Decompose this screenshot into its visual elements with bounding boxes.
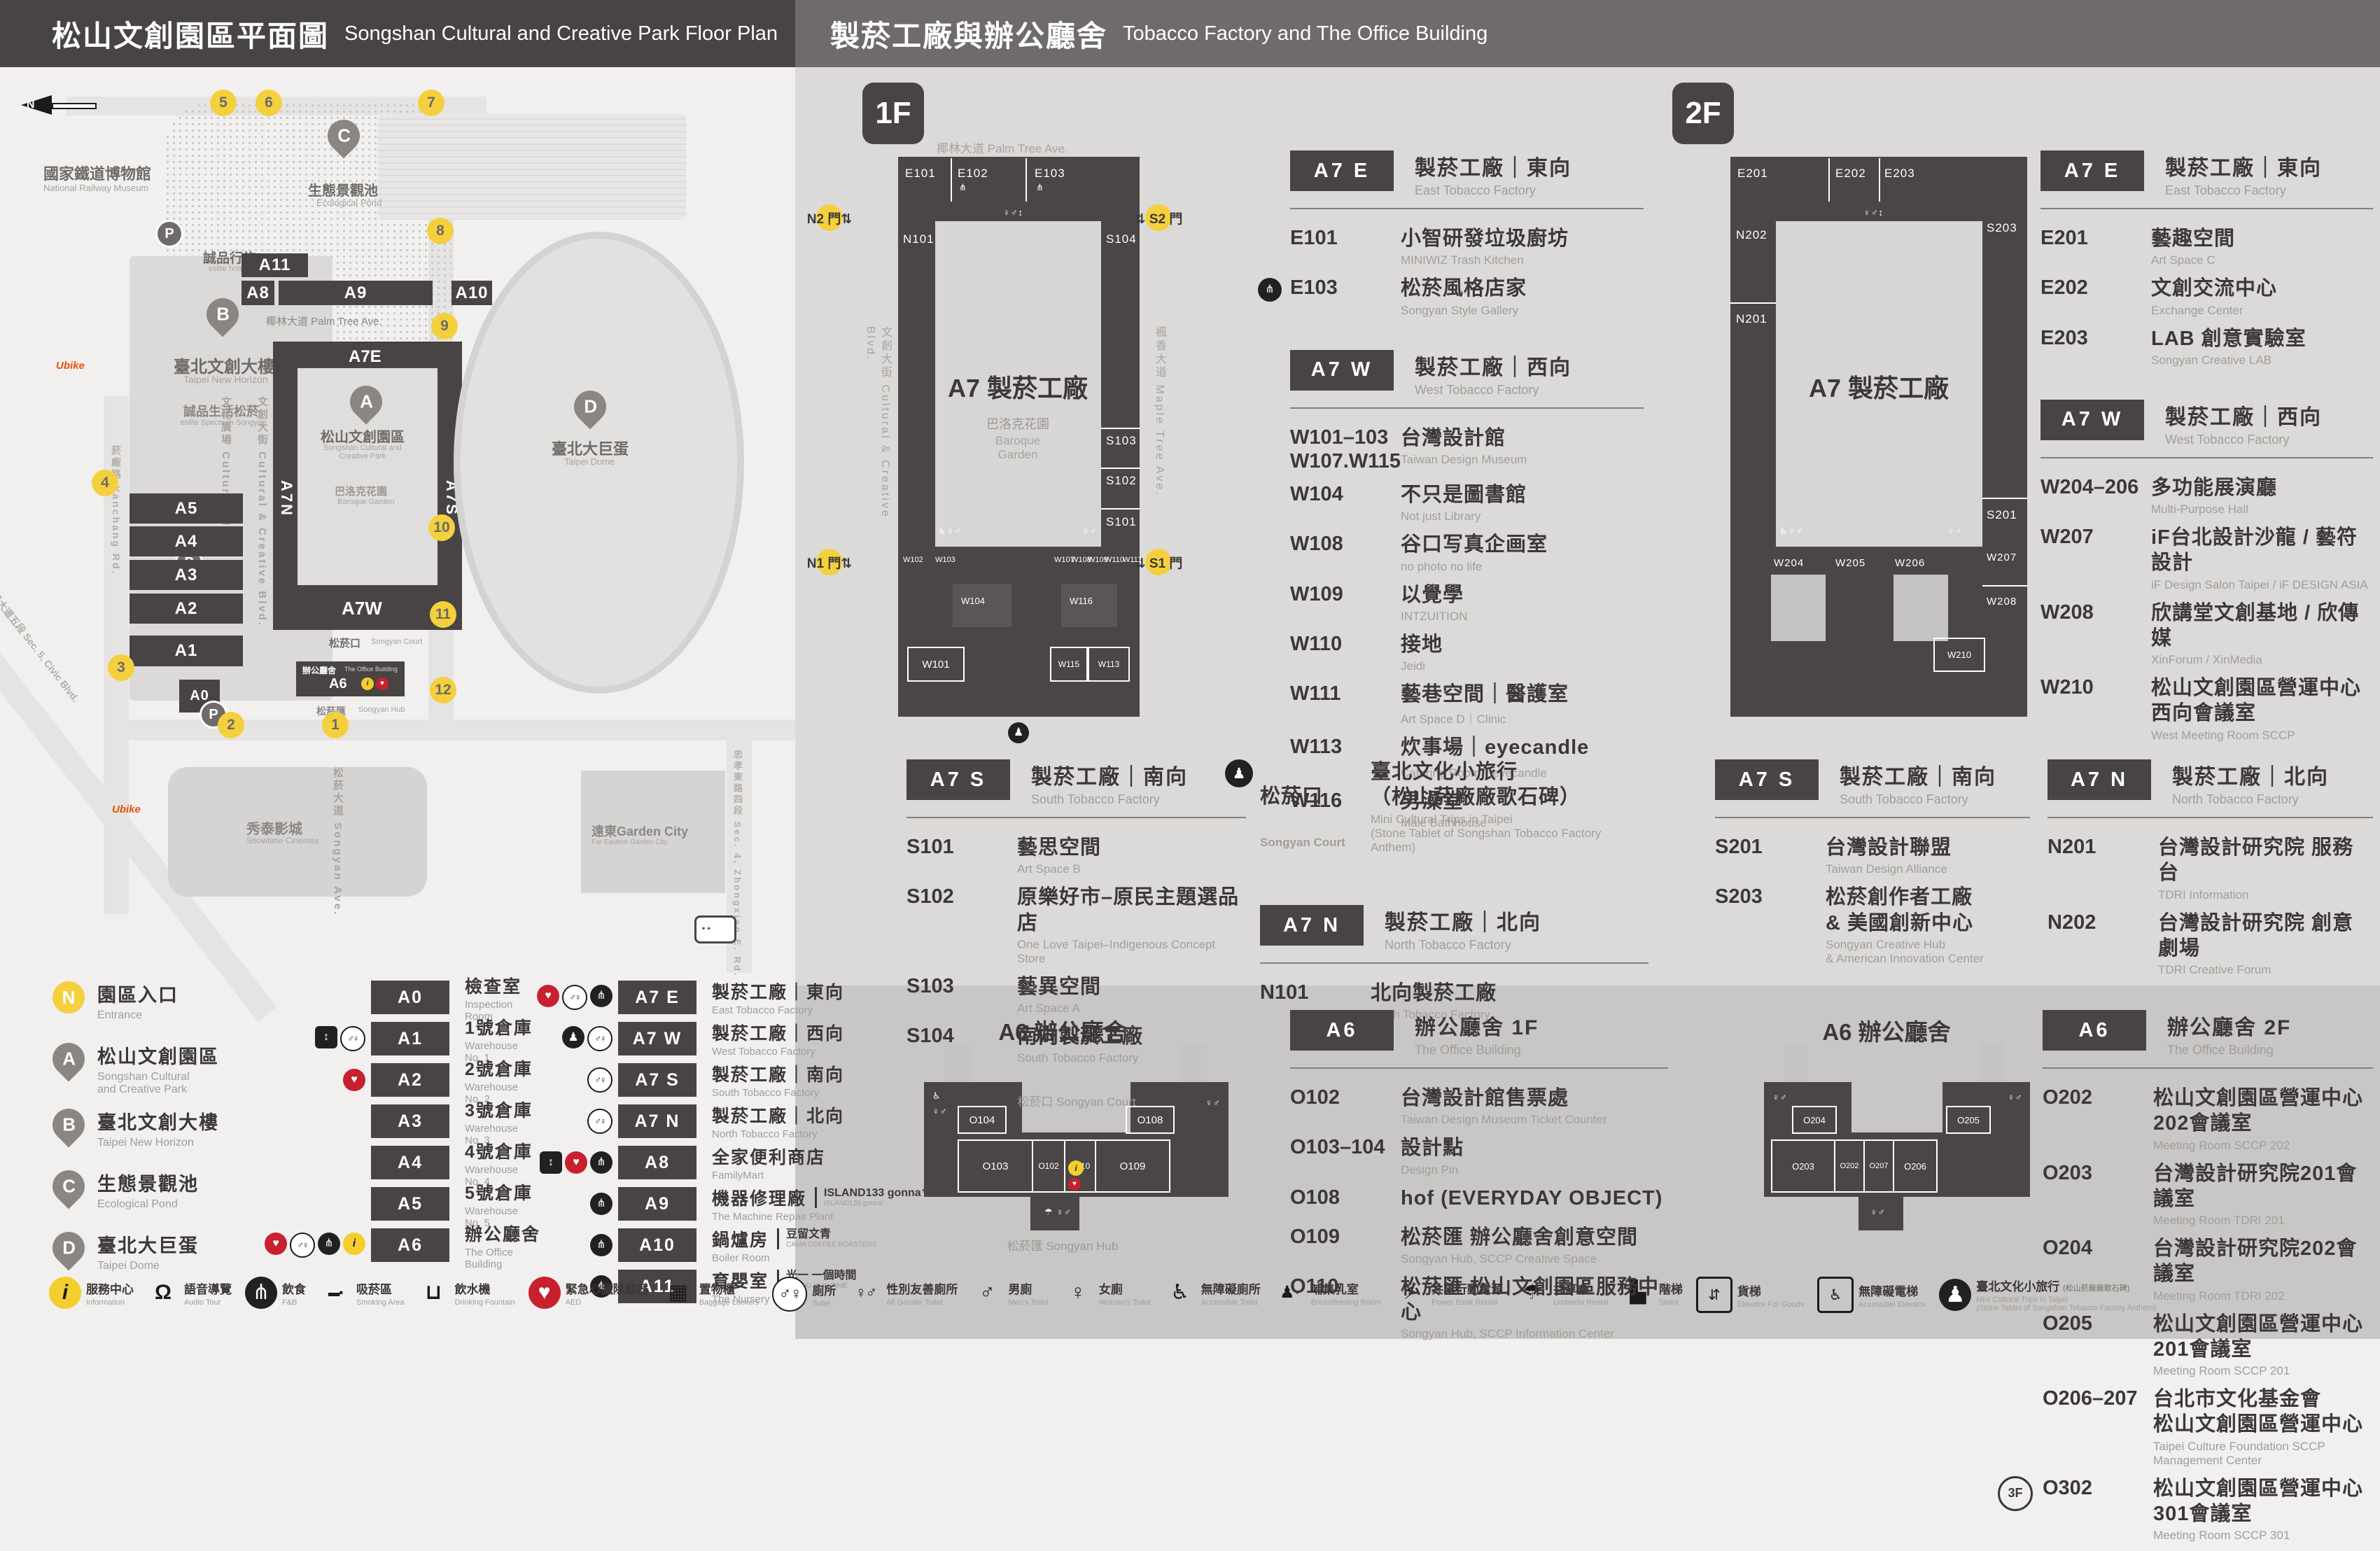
office-building-2f-listing: A6 辦公廳舍 2F The Office Building O202 松山文創… — [2043, 1010, 2373, 1551]
section-badge: A7 W — [1290, 350, 1394, 391]
room-s104: S104 — [1106, 232, 1137, 246]
section-title-en: The Office Building — [2167, 1043, 2291, 1058]
facility-legend-item: 語音導覽 Audio Tour — [147, 1277, 232, 1309]
place-name-zh: 松山文創園區 — [97, 1041, 219, 1069]
room-divider — [1982, 498, 2027, 499]
room-w115: W115 — [1050, 647, 1088, 682]
room-list-item: O109 松菸匯 辦公廳舍創意空間 Songyan Hub, SCCP Crea… — [1290, 1225, 1668, 1266]
room-name-zh: 原樂好市–原民主題選品店 — [1017, 885, 1246, 936]
toilet-icon: ♀♂ — [1947, 526, 1963, 536]
place-name-zh: 生態景觀池 — [97, 1169, 199, 1196]
section-badge: A7 W — [2040, 400, 2144, 440]
pin-d: D — [45, 1225, 91, 1270]
facility-legend-item: 飲食 F&B — [245, 1277, 306, 1309]
room-name-en: Not just Library — [1401, 510, 1527, 524]
women-icon — [1062, 1277, 1094, 1309]
legend-place-row: C 生態景觀池 Ecological Pond — [52, 1169, 283, 1219]
accessible-elevator-icon — [1817, 1277, 1854, 1313]
section-divider — [2040, 457, 2373, 458]
facility-label-en: Information — [86, 1298, 134, 1307]
legend-place-row: B 臺北文創大樓 Taipei New Horizon — [52, 1107, 283, 1158]
room-code: W207 — [2040, 525, 2151, 592]
room-n201: N201 — [1736, 312, 1767, 326]
toilet-icon: ♀♂↕ — [1003, 207, 1023, 218]
room-w206-void — [1893, 575, 1948, 641]
room-w205: W205 — [1835, 557, 1865, 569]
bus-icon — [694, 915, 736, 943]
gate-2: 2 — [218, 712, 244, 738]
legend-building-row: A1 1號倉庫 Warehouse No. 1 — [280, 1021, 521, 1056]
facility-legend-item: 廁所 Toilet — [772, 1277, 836, 1312]
place-name-en: Taipei Dome — [97, 1260, 199, 1272]
building-a4: A4 — [129, 526, 243, 556]
room-name-en: Meeting Room TDRI 202 — [2153, 1289, 2373, 1303]
gate-n1: N1 門⇅ — [816, 549, 843, 575]
section-title-en: East Tobacco Factory — [1415, 183, 1571, 198]
park-label-en: Songshan Cultural and Creative Park — [323, 444, 402, 461]
food-icon — [590, 985, 612, 1007]
room-code: O302 — [2043, 1476, 2153, 1543]
facility-label-en: F&B — [282, 1298, 306, 1307]
railway-museum-label-zh: 國家鐵道博物館 — [43, 162, 151, 184]
left-header: 松山文創園區平面圖 Songshan Cultural and Creative… — [0, 0, 795, 67]
room-o102: O102 — [1032, 1139, 1065, 1193]
gate-3: 3 — [108, 654, 134, 681]
room-code: W208 — [2040, 601, 2151, 668]
room-name-zh: 台灣設計研究院 創意劇場 — [2158, 911, 2373, 962]
legend-building-row: A5 5號倉庫 Warehouse No. 5 — [280, 1186, 521, 1221]
room-list-item: S101 藝思空間 Art Space B — [906, 835, 1246, 876]
room-name-zh: 欣講堂文創基地 / 欣傳媒 — [2151, 601, 2373, 652]
facility-label-en: Accessible Elevator — [1858, 1300, 1926, 1309]
room-name-zh: 松菸匯 辦公廳舍創意空間 — [1401, 1225, 1638, 1250]
room-name-en: Songyan Style Gallery — [1401, 304, 1527, 318]
room-name-zh: hof (EVERYDAY OBJECT) — [1401, 1186, 1662, 1211]
room-e202: E202 — [1835, 167, 1866, 181]
room-s203: S203 — [1987, 221, 2017, 235]
room-list-item: W111 藝巷空間｜醫護室 Art Space D｜Clinic — [1290, 682, 1644, 727]
building-code-badge: A10 — [618, 1228, 696, 1262]
section-title-zh: 製菸工廠｜東向 — [1415, 150, 1571, 181]
building-a5: A5 — [129, 493, 243, 524]
toilet-icon — [587, 1026, 612, 1051]
office-building-2f-plan: A6 辦公廳舍 O204 O205 O203 O202 O207 O206 ♀♂… — [1750, 999, 2044, 1251]
facility-label-en: Smoking Area — [356, 1298, 404, 1307]
building-code-badge: A4 — [371, 1146, 449, 1179]
room-name-en: Meeting Room SCCP 201 — [2153, 1364, 2373, 1378]
baroque-label-en: Baroque Garden — [337, 498, 394, 506]
room-code: O108 — [1290, 1186, 1401, 1216]
section-title-zh: 辦公廳舍 1F — [1415, 1010, 1539, 1041]
building-name-en: North Tobacco Factory — [712, 1128, 844, 1140]
section-badge: A7 E — [1290, 150, 1394, 191]
room-code: O102 — [1290, 1086, 1401, 1127]
parking-icon: P — [155, 220, 183, 248]
food-icon — [590, 1151, 612, 1174]
facility-legend-item: 性別友善廁所 All Gender Toilet — [849, 1277, 958, 1309]
room-name-en: XinForum / XinMedia — [2151, 653, 2373, 667]
toilet-icon: ♀♂ — [1772, 1092, 1788, 1102]
facility-label-en: Audio Tour — [184, 1298, 232, 1307]
room-code: O206–207 — [2043, 1387, 2153, 1468]
room-list-item: O205 松山文創園區營運中心201會議室 Meeting Room SCCP … — [2043, 1312, 2373, 1379]
room-code: N202 — [2047, 911, 2158, 978]
room-o202: O202 — [1834, 1139, 1865, 1193]
toilet-icon — [772, 1277, 807, 1312]
facility-label-en: Drinking Fountain — [454, 1298, 514, 1307]
facility-label-zh: 女廁 — [1099, 1279, 1151, 1297]
room-name-zh: 台灣設計研究院201會議室 — [2153, 1161, 2373, 1212]
room-list-item: O103–104 設計點 Design Pin — [1290, 1135, 1668, 1177]
room-name-en: TDRI Information — [2158, 888, 2373, 902]
building-code-badge: A8 — [618, 1146, 696, 1179]
legend-places: N 園區入口 Entrance A 松山文創園區 Songshan Cultur… — [52, 980, 283, 1292]
room-code: W111 — [1290, 682, 1401, 727]
stairwell — [1182, 1043, 1207, 1083]
room-name-en: West Meeting Room SCCP — [2151, 729, 2361, 743]
room-divider — [1101, 428, 1140, 429]
court-title-zh: 松菸口 — [1260, 784, 1371, 809]
floor-2-plan: E201 E202 E203 N202 N201 S203 S201 A7 製菸… — [1723, 137, 2034, 743]
facility-legend-item: 服務中心 Information — [49, 1277, 134, 1309]
facility-label-zh: 緊急心臟除顫器 — [566, 1279, 649, 1297]
section-badge: A7 N — [1260, 905, 1364, 946]
building-name-zh: 製菸工廠｜北向 — [712, 1102, 844, 1128]
room-code: O204 — [2043, 1236, 2153, 1303]
floor-2-south-listings: A7 S 製菸工廠｜南向 South Tobacco Factory S201 … — [1715, 759, 2030, 974]
room-code: O205 — [2043, 1312, 2153, 1379]
building-name-zh: 檢查室 — [465, 973, 521, 998]
room-list-item: E101 小智研發垃圾廚坊 MINIWIZ Trash Kitchen — [1290, 226, 1644, 267]
room-e101: E101 — [905, 167, 936, 181]
facility-label-zh: 服務中心 — [86, 1279, 134, 1297]
room-code: E101 — [1290, 226, 1401, 267]
room-name-zh: 台灣設計聯盟 — [1826, 835, 1952, 860]
baroque-garden-label-en: Baroque Garden — [995, 434, 1040, 462]
building-name-en: The Machine Repair Plant — [712, 1211, 927, 1223]
room-code: O110 — [1290, 1275, 1401, 1342]
hub-label-en: Songyan Hub — [358, 706, 405, 714]
room-name-zh: 接地 — [1401, 632, 1443, 657]
room-o104: O104 — [958, 1106, 1007, 1134]
room-code: E201 — [2040, 226, 2151, 267]
place-name-en: Entrance — [97, 1009, 178, 1022]
section-title-en: North Tobacco Factory — [2172, 792, 2329, 807]
room-name-zh: 台灣設計館 — [1401, 426, 1527, 451]
baroque-label-zh: 巴洛克花園 — [335, 484, 387, 498]
room-w210: W210 — [1933, 638, 1985, 672]
place-name-zh: 臺北文創大樓 — [97, 1107, 219, 1135]
legend-building-row: A0 檢查室 Inspection Room — [280, 980, 521, 1015]
pin-c: C — [45, 1163, 91, 1209]
room-list-item: E202 文創交流中心 Exchange Center — [2040, 276, 2373, 317]
aed-icon — [265, 1233, 287, 1255]
building-name-zh: 鍋爐房 — [712, 1226, 769, 1251]
section-title-en: West Tobacco Factory — [1415, 383, 1571, 398]
room-e201: E201 — [1737, 167, 1768, 181]
facility-label-en: Women's Toilet — [1099, 1298, 1151, 1307]
gate-s1: ⇅ S1 門 — [1145, 549, 1172, 575]
facility-label-zh: 語音導覽 — [184, 1279, 232, 1297]
room-list-item: W109 以覺學 INTZUITION — [1290, 582, 1644, 624]
room-divider — [1101, 468, 1140, 469]
right-header-title-en: Tobacco Factory and The Office Building — [1123, 22, 1487, 45]
room-w113: W113 — [1088, 647, 1130, 682]
room-list-item: W204–206 多功能展演廳 Multi-Purpose Hall — [2040, 475, 2373, 517]
food-icon: ⋔ — [1036, 182, 1044, 193]
legend-place-row: N 園區入口 Entrance — [52, 980, 283, 1030]
place-name-zh: 園區入口 — [97, 980, 178, 1007]
court-label-en: Songyan Court — [371, 638, 422, 646]
aed-icon — [565, 1151, 587, 1174]
gate-4: 4 — [92, 470, 118, 496]
section-divider — [2043, 1067, 2373, 1069]
toilet-icon — [340, 1026, 365, 1051]
room-o206: O206 — [1893, 1139, 1938, 1193]
section-divider — [1290, 1067, 1668, 1069]
room-name-zh: 炊事場｜eyecandle — [1401, 735, 1589, 760]
room-w208: W208 — [1987, 596, 2017, 608]
room-divider — [1879, 158, 1880, 202]
toilet-icon: ♿♀♂ — [1779, 526, 1803, 537]
legend-place-row: D 臺北大巨蛋 Taipei Dome — [52, 1230, 283, 1281]
facility-legend-item: 無障礙電梯 Accessible Elevator — [1817, 1277, 1926, 1313]
legend-factory-row: A7 S 製菸工廠｜南向 South Tobacco Factory — [521, 1062, 794, 1097]
court-title-en: Songyan Court — [1260, 836, 1371, 850]
room-name-zh: 台灣設計研究院202會議室 — [2153, 1236, 2373, 1287]
wheelchair-icon: ♿ — [932, 1090, 941, 1102]
legend-place-row: A 松山文創園區 Songshan Cultural and Creative … — [52, 1041, 283, 1096]
facility-label-zh: 貨梯 — [1737, 1282, 1804, 1299]
room-name-zh: 文創交流中心 — [2151, 276, 2277, 301]
floor-1-north-listings: 松菸口 Songyan Court 臺北文化小旅行 （松山菸廠廠歌石碑） Min… — [1260, 759, 1648, 1030]
legend-factory-row: A9 機器修理廠ISLAND133 gonna⁺ISLAND133 gonna⁺… — [521, 1186, 794, 1221]
toilet-icon: ♀♂ — [1082, 526, 1098, 536]
room-code: W110 — [1290, 632, 1401, 673]
yanchang-rd-label: 菸廠路 Yanchang Rd. — [109, 445, 123, 564]
room-list-item: N202 台灣設計研究院 創意劇場 TDRI Creative Forum — [2047, 911, 2373, 978]
info-icon — [343, 1233, 365, 1255]
building-a11: A11 — [241, 253, 308, 277]
room-divider — [1730, 302, 1776, 304]
section-title-zh: 製菸工廠｜南向 — [1031, 759, 1188, 790]
room-list-item: O204 台灣設計研究院202會議室 Meeting Room TDRI 202 — [2043, 1236, 2373, 1303]
room-code: W204–206 — [2040, 475, 2151, 517]
facility-label-zh: 性別友善廁所 — [886, 1279, 958, 1297]
food-icon: ⋔ — [959, 182, 967, 193]
room-name-zh: 小智研發垃圾廚坊 — [1401, 226, 1569, 251]
partner-name: 豆留文青 — [786, 1228, 876, 1241]
place-name-zh: 臺北大巨蛋 — [97, 1230, 199, 1258]
room-w116: W116 — [1070, 596, 1093, 606]
legend-building-row: A3 3號倉庫 Warehouse No. 3 — [280, 1104, 521, 1139]
room-divider — [1828, 158, 1830, 202]
section-title-zh: 製菸工廠｜東向 — [2165, 150, 2322, 181]
aed-icon — [376, 678, 388, 690]
room-name-zh: 松菸匯 松山文創園區服務中心 — [1401, 1275, 1668, 1326]
building-name-zh: 製菸工廠｜南向 — [712, 1061, 844, 1086]
facility-label-zh: 飲食 — [282, 1279, 306, 1297]
room-name-zh: 以覺學 — [1401, 582, 1467, 608]
ubike-logo: Ubike — [112, 803, 141, 815]
room-list-item: E203 LAB 創意實驗室 Songyan Creative LAB — [2040, 326, 2373, 367]
room-list-item: O202 松山文創園區營運中心202會議室 Meeting Room SCCP … — [2043, 1086, 2373, 1153]
elevator-icon — [540, 1151, 562, 1174]
facility-label-zh: 置物櫃 — [699, 1279, 759, 1297]
section-badge: A7 S — [906, 759, 1010, 800]
room-name-zh: LAB 創意實驗室 — [2151, 326, 2306, 351]
room-o108: O108 — [1126, 1106, 1175, 1134]
building-name-en: FamilyMart — [712, 1170, 825, 1181]
room-o204: O204 — [1792, 1106, 1837, 1134]
aed-icon — [528, 1277, 561, 1309]
place-name-en: Songshan Cultural and Creative Park — [97, 1071, 219, 1096]
toilet-icon — [587, 1109, 612, 1134]
legend-factory-row: A7 N 製菸工廠｜北向 North Tobacco Factory — [521, 1104, 794, 1139]
right-header: 製菸工廠與辦公廳舍 Tobacco Factory and The Office… — [795, 0, 2380, 67]
songyan-court-entry: 松菸口 Songyan Court 臺北文化小旅行 （松山菸廠廠歌石碑） Min… — [1260, 759, 1648, 874]
men-icon — [971, 1277, 1003, 1309]
room-name-zh: 藝思空間 — [1017, 835, 1101, 860]
section-title-en: North Tobacco Factory — [1385, 938, 1541, 953]
info-icon — [49, 1277, 81, 1309]
access-icon — [1164, 1277, 1196, 1309]
eslite-hotel-label-en: eslite hotel — [209, 265, 246, 273]
room-list-item: O110 松菸匯 松山文創園區服務中心 Songyan Hub, SCCP In… — [1290, 1275, 1668, 1342]
room-name-zh: 不只是圖書館 — [1401, 482, 1527, 507]
gate-7: 7 — [418, 90, 444, 116]
facility-label-zh: 無障礙電梯 — [1858, 1282, 1926, 1299]
facility-label-en: Toilet — [812, 1300, 836, 1308]
legend-factory: A7 E 製菸工廠｜東向 East Tobacco Factory A7 W 製… — [521, 980, 794, 1310]
room-w104: W104 — [961, 596, 985, 606]
a6-plan-title: A6 辦公廳舍 — [998, 1013, 1126, 1047]
office-building-1f-plan: A6 辦公廳舍 松菸口 Songyan Court O104 O108 O103… — [903, 999, 1260, 1251]
palm-ave-label: 椰林大道 Palm Tree Ave. — [266, 314, 382, 328]
legend-building-row: A2 2號倉庫 Warehouse No. 2 — [280, 1062, 521, 1097]
section-badge: A7 E — [2040, 150, 2144, 191]
showtime-label-zh: 秀泰影城 — [246, 817, 302, 838]
room-w111: W111 — [1123, 556, 1142, 564]
dome-label-en: Taipei Dome — [564, 456, 615, 467]
office-building-1f-listing: A6 辦公廳舍 1F The Office Building O102 台灣設計… — [1290, 1010, 1668, 1349]
listing-section: A7 S 製菸工廠｜南向 South Tobacco Factory S201 … — [1715, 759, 2030, 966]
facility-legend-item: 置物櫃 Baggage Lockers — [662, 1277, 759, 1309]
floor-3-badge: 3F — [1998, 1476, 2033, 1511]
garden-city-label: 遠東Garden City — [591, 822, 688, 840]
section-title-zh: 製菸工廠｜北向 — [1385, 905, 1541, 936]
food-icon — [590, 1234, 612, 1256]
room-name-en: Songyan Creative LAB — [2151, 353, 2306, 367]
new-horizon-label-en: Taipei New Horizon — [183, 374, 268, 385]
section-title-zh: 製菸工廠｜西向 — [2165, 400, 2322, 430]
room-name-zh: 藝趣空間 — [2151, 226, 2235, 251]
room-s102: S102 — [1106, 474, 1137, 488]
goods-elevator-icon — [1696, 1277, 1732, 1313]
section-badge: A7 S — [1715, 759, 1819, 800]
room-w204: W204 — [1774, 557, 1804, 569]
building-name-en: West Tobacco Factory — [712, 1046, 844, 1058]
court-icon — [1225, 759, 1253, 787]
room-name-zh: 台北市文化基金會 松山文創園區營運中心 — [2153, 1387, 2373, 1438]
building-code-badge: A7 S — [618, 1063, 696, 1097]
room-name-en: Meeting Room TDRI 201 — [2153, 1214, 2373, 1228]
garden-city-label-en: Far Eastern Garden City — [591, 838, 667, 846]
toilet-icon — [290, 1233, 315, 1258]
room-list-item: W208 欣講堂文創基地 / 欣傳媒 XinForum / XinMedia — [2040, 601, 2373, 668]
room-name-en: MINIWIZ Trash Kitchen — [1401, 253, 1569, 267]
room-name-en: Songyan Hub, SCCP Information Center — [1401, 1327, 1668, 1341]
room-e203: E203 — [1884, 167, 1915, 181]
toilet-icon: ♀♂↕ — [1863, 207, 1884, 218]
north-arrow-icon — [21, 95, 52, 115]
room-name-en: Multi-Purpose Hall — [2151, 503, 2277, 517]
section-divider — [1290, 208, 1644, 209]
room-w110: W110 — [1105, 556, 1124, 564]
room-o109: O109 — [1095, 1139, 1170, 1193]
facility-legend-item: 貨梯 Elevator For Goods — [1696, 1277, 1804, 1313]
room-code: S203 — [1715, 885, 1826, 966]
room-name-zh: 松山文創園區營運中心301會議室 — [2153, 1476, 2373, 1527]
legend-building-row: A4 4號倉庫 Warehouse No. 4 — [280, 1145, 521, 1180]
listing-section: A7 E 製菸工廠｜東向 East Tobacco Factory E101 小… — [1290, 150, 1644, 318]
park-label-zh: 松山文創園區 — [321, 426, 405, 446]
smoke-icon — [319, 1277, 351, 1309]
baroque-garden-label-zh: 巴洛克花園 — [986, 414, 1049, 433]
building-name-en: East Tobacco Factory — [712, 1004, 844, 1016]
facility-label-en: Baggage Lockers — [699, 1298, 759, 1307]
left-header-title-zh: 松山文創園區平面圖 — [52, 13, 329, 55]
stairwell — [945, 1043, 970, 1083]
building-name-zh: 機器修理廠 — [712, 1185, 806, 1210]
room-name-en: Art Space D｜Clinic — [1401, 709, 1569, 727]
room-list-item: S102 原樂好市–原民主題選品店 One Love Taipei–Indige… — [906, 885, 1246, 966]
toilet-icon: ♀♂ — [1205, 1097, 1221, 1108]
facility-legend-item: 女廁 Women's Toilet — [1062, 1277, 1151, 1309]
room-o103: O103 — [958, 1139, 1033, 1193]
showtime-label-en: Showtime Cinemas — [246, 836, 318, 845]
room-e102: E102 — [958, 167, 988, 181]
section-divider — [1290, 407, 1644, 409]
room-name-en: Jeidi — [1401, 659, 1443, 673]
building-a2: A2 — [129, 594, 243, 624]
building-code-badge: A6 — [371, 1228, 449, 1262]
railway-museum-label-en: National Railway Museum — [43, 183, 148, 193]
room-name-en: Art Space B — [1017, 862, 1101, 876]
building-a6-label: A6 — [329, 676, 347, 692]
room-code: E103 — [1290, 276, 1401, 317]
gate-12: 12 — [430, 677, 456, 703]
gate-11: 11 — [430, 601, 456, 628]
room-code: S101 — [906, 835, 1017, 876]
room-code: W101–103 W107.W115 — [1290, 426, 1401, 475]
songyan-court-label: 松菸口 Songyan Court — [1017, 1092, 1135, 1109]
section-title-zh: 製菸工廠｜南向 — [1840, 759, 1996, 790]
room-name-en: One Love Taipei–Indigenous Concept Store — [1017, 938, 1246, 966]
cc-blvd-label: 文創大街 Cultural & Creative Blvd. — [255, 396, 269, 578]
locker-icon — [662, 1277, 694, 1309]
room-list-item: W110 接地 Jeidi — [1290, 632, 1644, 673]
facility-label-zh: 飲水機 — [454, 1279, 514, 1297]
facility-label-zh: 無障礙廁所 — [1201, 1279, 1261, 1297]
room-name-en: TDRI Creative Forum — [2158, 963, 2373, 977]
room-code: O103–104 — [1290, 1135, 1401, 1177]
right-header-title-zh: 製菸工廠與辦公廳舍 — [830, 13, 1107, 55]
room-list-item: W207 iF台北設計沙龍 / 藝符設計 iF Design Salon Tai… — [2040, 525, 2373, 592]
room-code: S201 — [1715, 835, 1826, 876]
section-title-en: South Tobacco Factory — [1840, 792, 1996, 807]
floor-1-plan: 椰林大道 Palm Tree Ave. E101 E102 E103 ⋔ ⋔ N… — [860, 137, 1170, 743]
